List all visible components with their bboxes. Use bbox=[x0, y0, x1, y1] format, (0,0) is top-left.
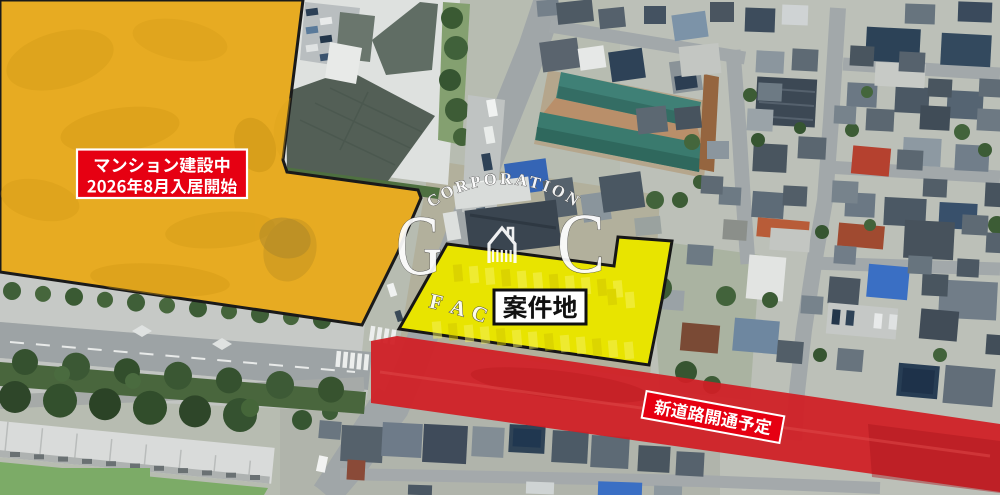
svg-text:C: C bbox=[557, 195, 605, 291]
svg-text:G: G bbox=[396, 197, 442, 293]
